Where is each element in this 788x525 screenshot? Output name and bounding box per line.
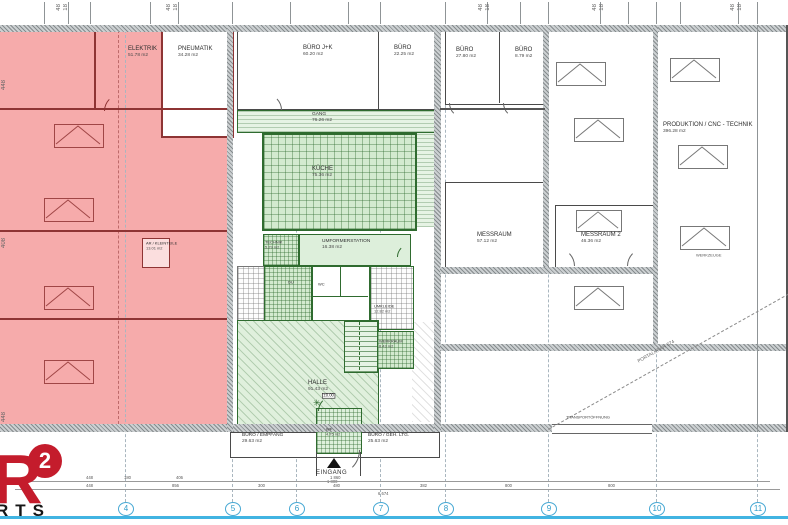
skylight-icon	[54, 124, 104, 148]
dim-label: 800	[608, 484, 615, 488]
dim-top-label: 48	[592, 4, 598, 11]
wall-red-3	[0, 318, 230, 320]
room-label-buero-geh-ltg: BÜRO / GEH. LTG. 25.63 m2	[368, 433, 409, 444]
room-label-pneumatik: PNEUMATIK 34.28 m2	[178, 46, 213, 60]
wall-grid10	[653, 25, 658, 351]
wall-grid8	[434, 25, 441, 432]
dim-label: 448	[86, 484, 93, 488]
dim-label: 448	[86, 476, 93, 480]
wall-top	[0, 25, 788, 32]
skylight-icon	[44, 360, 94, 384]
wall-grid11	[757, 25, 758, 432]
room-label-kueche: KÜCHE 75.36 m2	[312, 166, 337, 180]
wall-office-bottom	[440, 108, 545, 110]
dim-tick	[445, 2, 446, 24]
dim-tick	[348, 2, 349, 24]
door-arc	[449, 103, 464, 118]
skylight-icon	[576, 210, 622, 232]
skylight-icon	[44, 286, 94, 310]
room-label-halle: HALLE 91.43 m2	[308, 380, 333, 394]
sheet-border-line	[0, 516, 788, 519]
room-messraum	[445, 182, 547, 270]
grid-bubble-5: 5	[225, 502, 241, 516]
skylight-icon	[670, 58, 720, 82]
transport-opening	[552, 424, 652, 434]
dim-tick	[44, 2, 45, 24]
portalkran-line	[548, 294, 788, 430]
level-marker: ±0.00	[322, 393, 335, 399]
dim-line	[15, 489, 780, 490]
dim-tick	[680, 2, 681, 24]
room-label-buero-s: BÜRO 8.79 m2	[515, 47, 537, 61]
grid-bubble-10: 10	[649, 502, 665, 516]
logo-badge: 2	[28, 444, 62, 478]
dim-top-label: 18	[63, 4, 69, 11]
level-star-icon: ✳	[313, 398, 321, 409]
rooms-buero-right	[445, 31, 547, 105]
grid-bubble-4: 4	[118, 502, 134, 516]
dim-label: 300	[258, 484, 265, 488]
wall-sanitary	[340, 266, 341, 296]
wall-bottom	[0, 424, 788, 432]
grid-bubble-6: 6	[289, 502, 305, 516]
room-label-umformerstation: UMFORMERSTATION 16.38 m2	[322, 239, 370, 250]
dim-tick	[290, 2, 291, 24]
grid-bubble-7: 7	[373, 502, 389, 516]
entrance-arrow-icon	[327, 458, 341, 468]
room-label-buero-l: BÜRO 27.80 m2	[456, 47, 481, 61]
room-label-umkleide: UMKLEIDE 12.82 m2	[374, 305, 394, 314]
room-label-werkzeuge: WERKZEUGE	[696, 254, 722, 259]
dim-tick	[232, 2, 233, 24]
room-label-technik: TECHNIK 5.29 m2	[265, 241, 282, 250]
logo-word: RTS	[0, 501, 51, 521]
dim-tick	[380, 2, 381, 24]
dim-tick	[628, 2, 629, 24]
dim-top-label: 18	[485, 4, 491, 11]
room-label-gang: GANG 76.26 m2	[312, 112, 332, 123]
room-buero-k	[378, 31, 439, 110]
grid-bubble-11: 11	[750, 502, 766, 516]
dim-label: 800	[505, 484, 512, 488]
dim-tick	[656, 2, 657, 24]
dim-top-label: 18	[737, 4, 743, 11]
dim-top-label: 18	[599, 4, 605, 11]
dim-line	[25, 481, 770, 482]
room-buero-jk	[237, 31, 380, 110]
skylight-icon	[680, 226, 730, 250]
room-label-buero-jk: BÜRO J+K 60.20 m2	[303, 45, 333, 59]
room-label-messraum: MESSRAUM 57.12 m2	[477, 232, 512, 246]
wall-red-4	[94, 25, 96, 110]
wall-red-dashed	[118, 25, 119, 424]
wall-lower-right	[440, 344, 788, 351]
dim-label: 856	[172, 484, 179, 488]
grid-bubble-8: 8	[438, 502, 454, 516]
room-label-werkraum: WERKRAUM 8.43 m2	[379, 340, 403, 349]
room-label-buero-k: BÜRO 22.25 m2	[394, 45, 419, 59]
room-label-wc: WC	[318, 283, 325, 288]
dim-label: 480	[333, 484, 340, 488]
room-label-du: DU	[288, 281, 294, 286]
skylight-icon	[44, 198, 94, 222]
floorplan-canvas: PORTALKRAN 574 ELEKTRIK 51.78 m2 PNEUMAT…	[0, 0, 788, 525]
dim-left-label: 448	[1, 80, 7, 90]
dim-tick	[90, 2, 91, 24]
wall-grid5	[227, 25, 233, 432]
dim-top-label: 18	[173, 4, 179, 11]
dim-top-label: 48	[56, 4, 62, 11]
dim-label: 1 860	[330, 476, 341, 480]
transport-label: TRANSPORTÖFFNUNG	[566, 416, 610, 421]
grid-bubble-9: 9	[541, 502, 557, 516]
door-arc	[503, 103, 518, 118]
wall-mid-right	[440, 267, 656, 274]
room-kueche	[262, 133, 417, 231]
room-gang	[237, 110, 439, 133]
dim-top-label: 48	[478, 4, 484, 11]
wall-grid9	[543, 25, 549, 270]
dim-tick	[757, 2, 758, 24]
room-label-wf: WF 4.75 m2	[326, 428, 340, 437]
room-label-produktion: PRODUKTION / CNC - TECHNIK 396.28 m2	[663, 122, 753, 136]
skylight-icon	[556, 62, 606, 86]
dim-total-label: 6 674	[378, 492, 389, 496]
wall-office-divider	[499, 31, 500, 103]
skylight-icon	[574, 286, 624, 310]
stair	[344, 321, 378, 373]
skylight-icon	[574, 118, 624, 142]
wall-red-2	[0, 230, 230, 232]
room-label-buero-empfang: BÜRO / EMPFANG 29.63 m2	[242, 433, 283, 444]
dim-label: 382	[420, 484, 427, 488]
dim-label: 180	[124, 476, 131, 480]
dim-left-label: 408	[1, 238, 7, 248]
room-label-messraum2: MESSRAUM 2 46.36 m2	[581, 232, 621, 246]
stair-walkline	[359, 322, 360, 370]
dim-top-label: 48	[730, 4, 736, 11]
dim-tick	[150, 2, 151, 24]
entry-side	[360, 452, 361, 476]
room-werkraum	[377, 331, 414, 369]
dim-label: 406	[176, 476, 183, 480]
dim-tick	[520, 2, 521, 24]
room-label-ar-kleinteile: AR / KLEINTEILE 13.01 m2	[146, 242, 177, 251]
wall-sanitary	[312, 296, 368, 297]
room-label-elektrik: ELEKTRIK 51.78 m2	[128, 46, 157, 60]
skylight-icon	[678, 145, 728, 169]
dim-top-label: 48	[166, 4, 172, 11]
dim-tick	[548, 2, 549, 24]
dim-left-label: 448	[1, 412, 7, 422]
